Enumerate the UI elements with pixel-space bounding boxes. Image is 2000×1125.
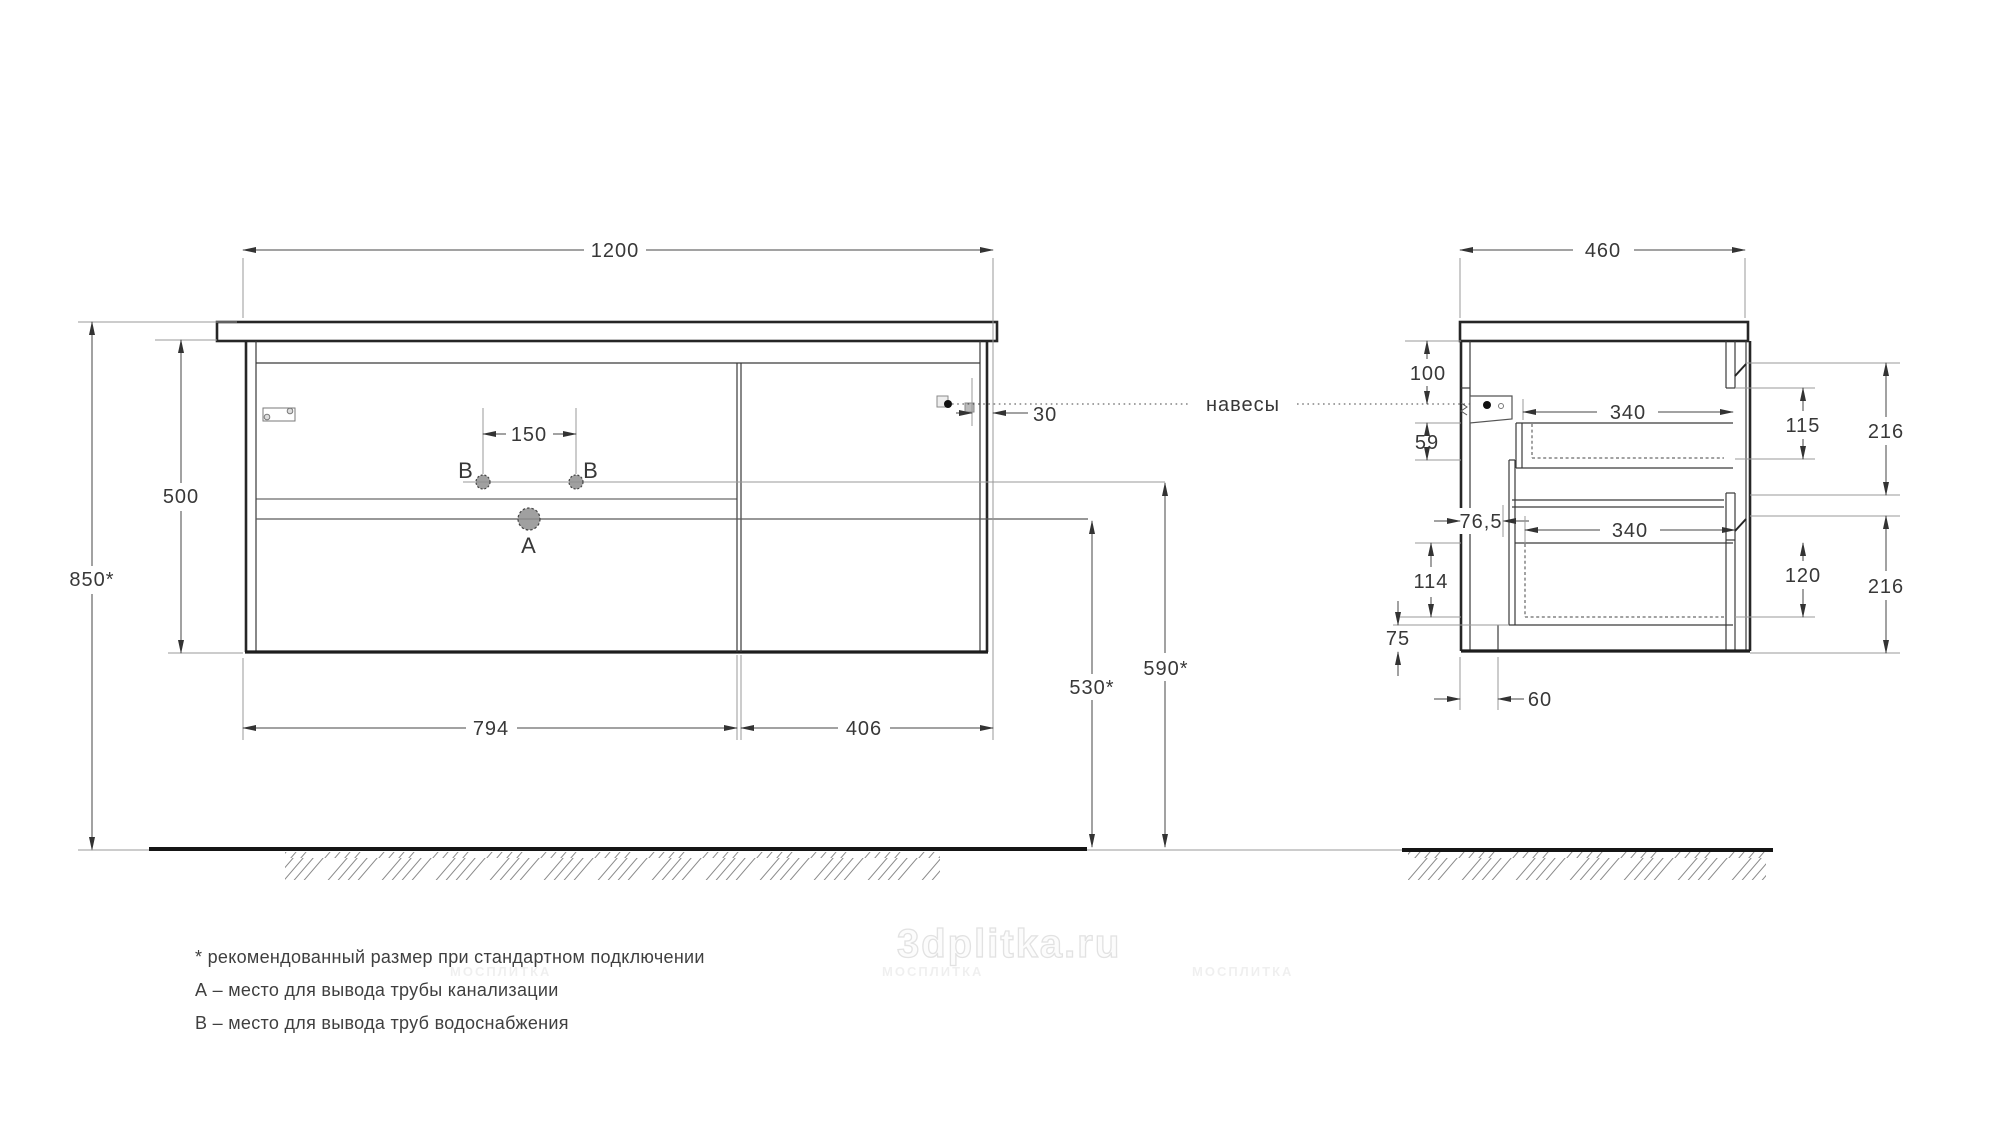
dim-114: 114 <box>1414 571 1449 593</box>
floor <box>78 849 1773 880</box>
watermark-text: 3dplitka.ru <box>897 922 1121 966</box>
dim-76-5: 76,5 <box>1460 511 1503 533</box>
dim-120: 120 <box>1785 565 1821 587</box>
dim-75: 75 <box>1386 628 1410 650</box>
lower-drawer <box>1509 460 1733 625</box>
side-countertop <box>1460 322 1748 341</box>
floor-hatch-front <box>285 852 940 880</box>
dim-faucet-spacing: 150 <box>511 424 547 446</box>
front-countertop <box>217 322 997 341</box>
label-a: A <box>521 533 537 558</box>
dim-216-bottom: 216 <box>1868 576 1904 598</box>
dim-340-top: 340 <box>1610 402 1646 424</box>
footnote-recommended: * рекомендованный размер при стандартном… <box>195 947 705 967</box>
technical-drawing: 3dplitka.ru МОСПЛИТКА МОСПЛИТКА МОСПЛИТК… <box>0 0 2000 1125</box>
footnote-b: В – место для вывода труб водоснабжения <box>195 1013 569 1033</box>
floor-hatch-side <box>1408 852 1766 880</box>
dim-width: 1200 <box>591 240 640 262</box>
wall-hanger-icon-side <box>1461 396 1512 423</box>
dim-cabinet-height: 500 <box>163 486 199 508</box>
dim-59: 59 <box>1415 432 1439 454</box>
hinge-icon <box>263 408 295 421</box>
dim-supply-height: 590* <box>1143 658 1188 680</box>
hangers-centerline: навесы <box>952 394 1480 416</box>
dim-340-bottom: 340 <box>1612 520 1648 542</box>
drawing-page: 3dplitka.ru МОСПЛИТКА МОСПЛИТКА МОСПЛИТК… <box>0 0 2000 1125</box>
label-b-left: B <box>458 458 474 483</box>
footnote-a: А – место для вывода трубы канализации <box>195 980 559 1000</box>
footnotes: * рекомендованный размер при стандартном… <box>195 947 705 1033</box>
dim-hanger-inset: 30 <box>1033 404 1057 426</box>
label-b-right: B <box>583 458 599 483</box>
dim-100: 100 <box>1410 363 1446 385</box>
drain-hole <box>518 508 540 530</box>
front-dimensions: 1200 150 30 500 850* 794 406 530 <box>69 240 1188 850</box>
dim-216-top: 216 <box>1868 421 1904 443</box>
wall-hanger-icon-front <box>937 378 974 426</box>
side-view <box>1460 322 1750 651</box>
dim-right-section: 406 <box>846 718 882 740</box>
dim-115: 115 <box>1786 415 1821 437</box>
dim-depth: 460 <box>1585 240 1621 262</box>
dim-drain-height: 530* <box>1069 677 1114 699</box>
side-dimensions: 460 100 59 340 76,5 340 114 <box>1386 240 1904 711</box>
dim-mount-height: 850* <box>69 569 114 591</box>
upper-drawer <box>1516 423 1733 468</box>
dim-60: 60 <box>1528 689 1552 711</box>
watermark-brand-2: МОСПЛИТКА <box>882 964 983 979</box>
dim-left-section: 794 <box>473 718 509 740</box>
hangers-label: навесы <box>1206 394 1280 416</box>
watermark-brand-3: МОСПЛИТКА <box>1192 964 1293 979</box>
front-view: B B A <box>217 322 1165 652</box>
